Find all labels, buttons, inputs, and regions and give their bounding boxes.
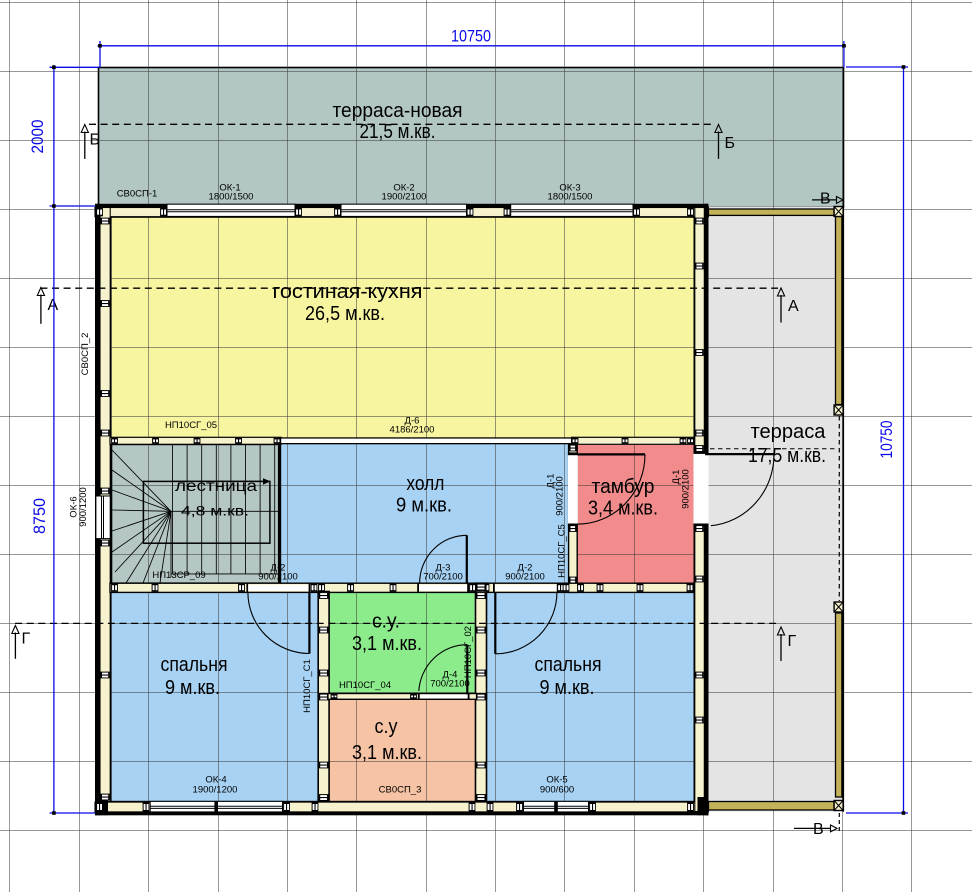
svg-text:9 м.кв.: 9 м.кв. bbox=[396, 495, 452, 517]
svg-text:с.у: с.у bbox=[375, 716, 398, 738]
svg-text:терраса-новая: терраса-новая bbox=[333, 100, 463, 122]
svg-text:900/2100: 900/2100 bbox=[555, 476, 566, 516]
svg-text:А: А bbox=[788, 298, 799, 315]
svg-text:НП10СГ_02: НП10СГ_02 bbox=[463, 626, 474, 678]
svg-text:тамбур: тамбур bbox=[592, 476, 655, 498]
svg-text:Г: Г bbox=[22, 631, 31, 648]
svg-text:900/2100: 900/2100 bbox=[258, 572, 298, 583]
svg-text:900/2100: 900/2100 bbox=[505, 572, 545, 583]
svg-text:700/2100: 700/2100 bbox=[430, 679, 470, 690]
svg-text:2000: 2000 bbox=[28, 120, 47, 154]
svg-text:СВ0СП_3: СВ0СП_3 bbox=[379, 785, 422, 796]
svg-text:3,4 м.кв.: 3,4 м.кв. bbox=[588, 498, 658, 520]
svg-text:4,8 м.кв.: 4,8 м.кв. bbox=[181, 503, 249, 519]
svg-text:3,1 м.кв.: 3,1 м.кв. bbox=[352, 633, 422, 655]
svg-text:26,5 м.кв.: 26,5 м.кв. bbox=[305, 303, 385, 325]
svg-text:терраса: терраса bbox=[751, 421, 827, 443]
svg-text:холл: холл bbox=[406, 473, 444, 495]
svg-text:9 м.кв.: 9 м.кв. bbox=[540, 677, 595, 699]
svg-text:8750: 8750 bbox=[30, 498, 49, 534]
svg-text:Г: Г bbox=[788, 633, 797, 650]
svg-text:Б: Б bbox=[90, 132, 101, 149]
svg-text:А: А bbox=[48, 297, 59, 314]
svg-text:НП10СГ_04: НП10СГ_04 bbox=[339, 680, 391, 691]
svg-text:НП10СГ_С1: НП10СГ_С1 bbox=[302, 659, 313, 713]
svg-text:1800/1500: 1800/1500 bbox=[548, 192, 593, 203]
svg-text:1900/2100: 1900/2100 bbox=[382, 192, 427, 203]
svg-text:В: В bbox=[820, 191, 831, 208]
svg-text:900/2100: 900/2100 bbox=[681, 469, 692, 509]
svg-text:900/600: 900/600 bbox=[540, 785, 574, 796]
svg-text:900/1200: 900/1200 bbox=[78, 487, 89, 527]
svg-text:СВ0СП_2: СВ0СП_2 bbox=[80, 333, 91, 376]
svg-text:21,5 м.кв.: 21,5 м.кв. bbox=[360, 121, 436, 143]
svg-text:3,1 м.кв.: 3,1 м.кв. bbox=[352, 742, 422, 764]
svg-text:с.у.: с.у. bbox=[372, 611, 400, 633]
svg-text:Б: Б bbox=[725, 135, 736, 152]
svg-text:НП13СР_09: НП13СР_09 bbox=[152, 570, 205, 581]
svg-text:В: В bbox=[813, 821, 824, 838]
svg-text:СВ0СП-1: СВ0СП-1 bbox=[117, 189, 158, 200]
svg-text:лестница: лестница bbox=[175, 478, 257, 495]
svg-text:700/2100: 700/2100 bbox=[423, 572, 463, 583]
svg-text:гостиная-кухня: гостиная-кухня bbox=[273, 281, 423, 303]
svg-text:9 м.кв.: 9 м.кв. bbox=[165, 677, 220, 699]
svg-text:НП10СГ_С5: НП10СГ_С5 bbox=[557, 524, 568, 578]
svg-text:спальня: спальня bbox=[161, 654, 228, 676]
svg-text:10750: 10750 bbox=[451, 27, 491, 46]
svg-text:1800/1500: 1800/1500 bbox=[209, 192, 254, 203]
svg-text:10750: 10750 bbox=[877, 421, 896, 459]
svg-text:спальня: спальня bbox=[535, 654, 602, 676]
svg-text:1900/1200: 1900/1200 bbox=[193, 785, 238, 796]
svg-text:НП10СГ_05: НП10СГ_05 bbox=[165, 420, 217, 431]
svg-text:4186/2100: 4186/2100 bbox=[390, 425, 435, 436]
svg-text:17,5 м.кв.: 17,5 м.кв. bbox=[748, 445, 826, 467]
